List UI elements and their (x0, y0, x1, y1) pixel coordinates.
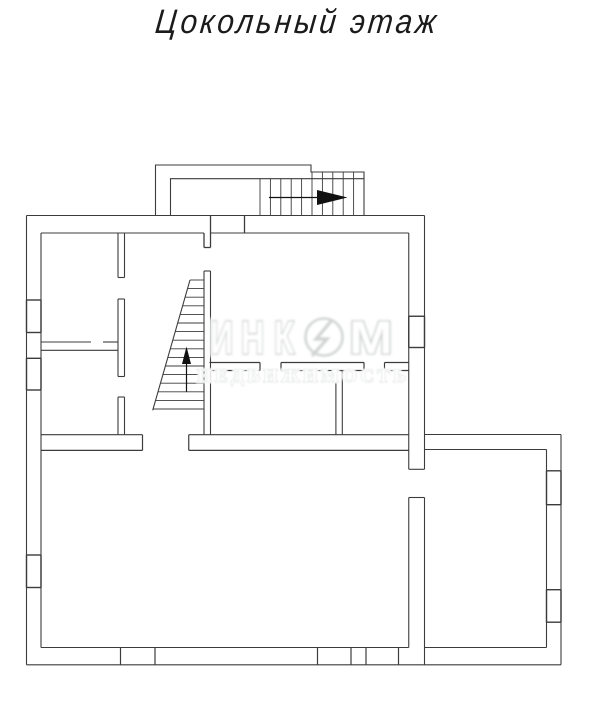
svg-text:Н: Н (241, 313, 264, 364)
svg-text:НЕДВИЖИМОСТЬ: НЕДВИЖИМОСТЬ (197, 366, 409, 387)
svg-text:И: И (210, 313, 233, 364)
svg-text:М: М (349, 312, 393, 363)
svg-text:К: К (274, 313, 295, 363)
svg-text:Цокольный этаж: Цокольный этаж (153, 2, 441, 40)
